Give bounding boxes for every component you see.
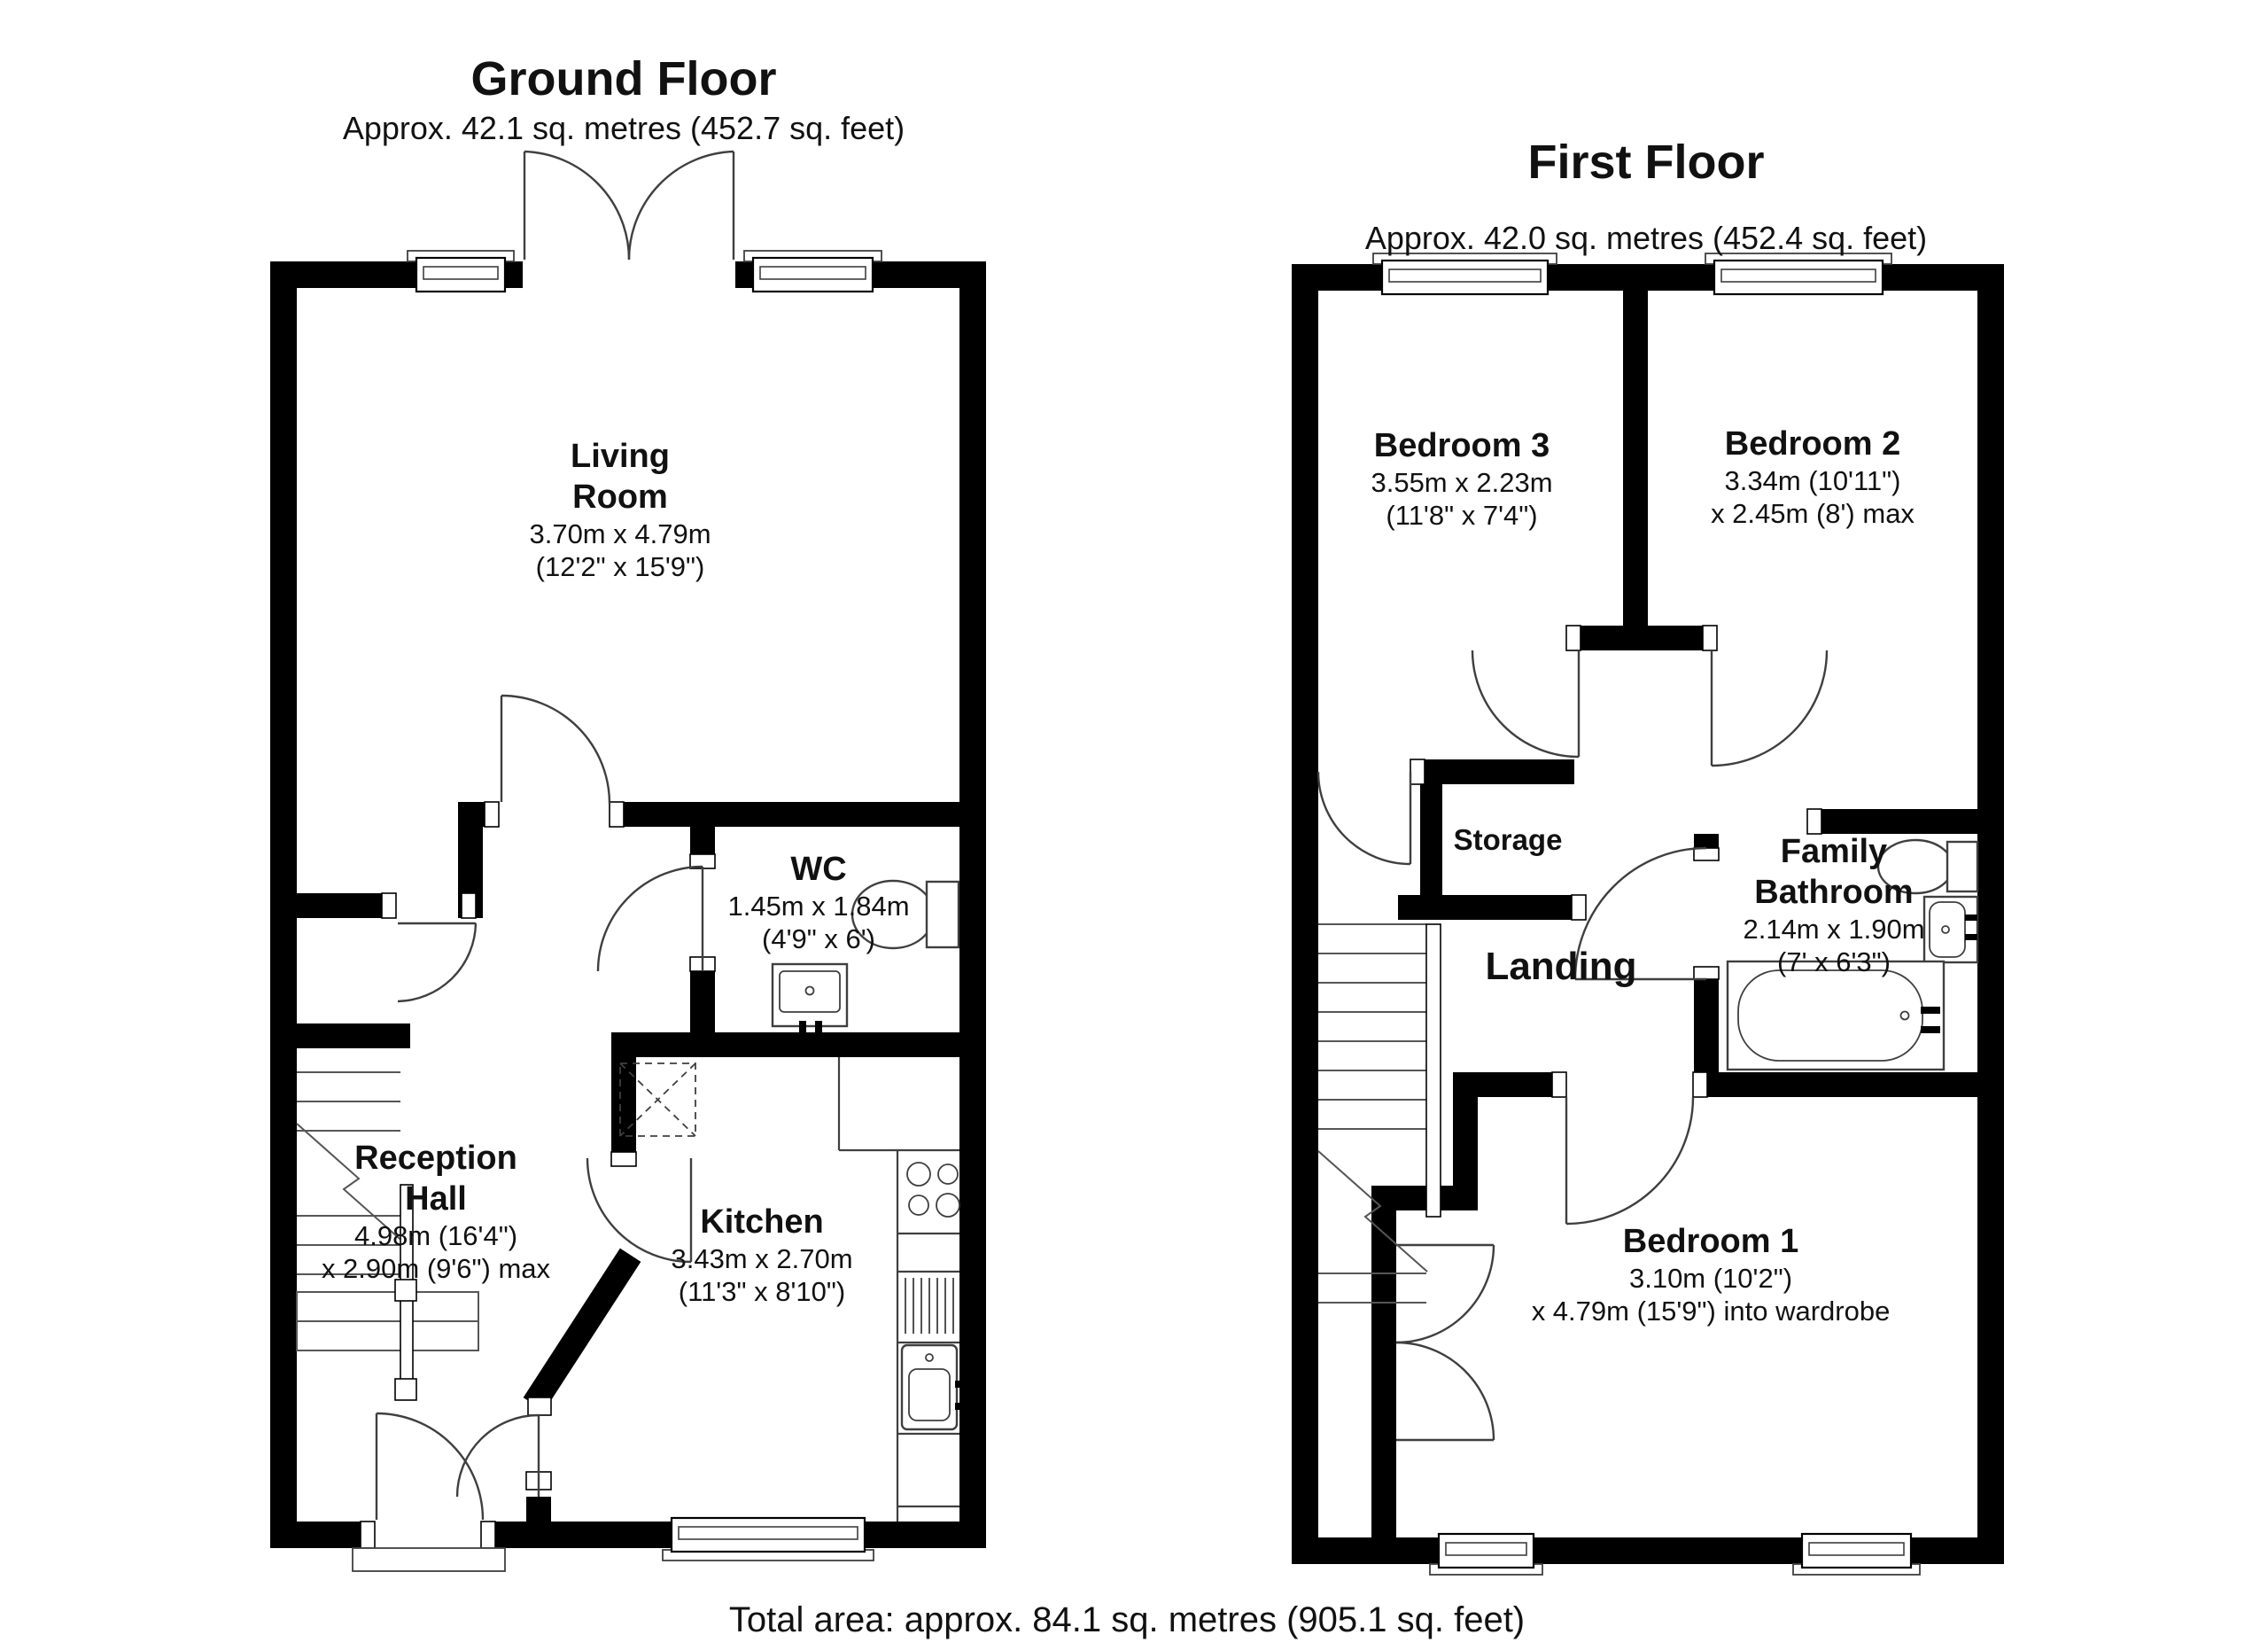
floorplan-page: Ground Floor Approx. 42.1 sq. metres (45…: [0, 0, 2268, 1650]
bedroom1-door: [1566, 1097, 1693, 1224]
room-label-bedroom1: Bedroom 1 3.10m (10'2") x 4.79m (15'9") …: [1532, 1221, 1891, 1327]
room-name: WC: [727, 849, 909, 890]
room-name: Family: [1743, 831, 1924, 872]
room-dims: x 2.45m (8') max: [1711, 497, 1915, 530]
ground-window-living-right: [744, 251, 882, 292]
room-label-wc: WC 1.45m x 1.84m (4'9" x 6'): [727, 849, 909, 955]
kitchen-sink: [902, 1345, 969, 1429]
room-dims: (4'9" x 6'): [727, 922, 909, 955]
room-dims: (11'8" x 7'4"): [1371, 499, 1552, 532]
room-label-bedroom3: Bedroom 3 3.55m x 2.23m (11'8" x 7'4"): [1371, 425, 1552, 532]
window-bedroom3: [1373, 253, 1557, 294]
room-name: Living: [529, 436, 711, 477]
room-name: Hall: [322, 1179, 550, 1219]
room-label-landing: Landing: [1485, 945, 1636, 989]
window-bedroom1-left: [1430, 1534, 1542, 1575]
room-dims: (11'3" x 8'10"): [671, 1275, 852, 1308]
room-dims: x 4.79m (15'9") into wardrobe: [1532, 1295, 1891, 1327]
room-dims: (7' x 6'3"): [1743, 946, 1924, 978]
room-name: Bedroom 1: [1532, 1221, 1891, 1262]
room-label-kitchen: Kitchen 3.43m x 2.70m (11'3" x 8'10"): [671, 1202, 852, 1308]
living-room-door: [501, 696, 610, 804]
bedroom3-cupboard-door: [1318, 772, 1410, 864]
room-label-storage: Storage: [1454, 822, 1563, 858]
room-name: Storage: [1454, 822, 1563, 858]
hall-living-door: [398, 923, 476, 1001]
kitchen-hob: [907, 1163, 959, 1217]
floorplan-drawing: [0, 0, 2268, 1650]
first-floor-title: First Floor: [1528, 135, 1765, 190]
room-dims: (12'2" x 15'9"): [529, 550, 711, 583]
kitchen-counter: [839, 1057, 959, 1522]
window-bedroom2: [1705, 253, 1891, 294]
ground-floor-title: Ground Floor: [471, 51, 777, 106]
room-name: Kitchen: [671, 1202, 852, 1242]
room-name: Bedroom 2: [1711, 424, 1915, 464]
room-label-family-bathroom: Family Bathroom 2.14m x 1.90m (7' x 6'3"…: [1743, 831, 1924, 978]
room-dims: 3.34m (10'11"): [1711, 464, 1915, 497]
room-name: Bathroom: [1743, 872, 1924, 913]
bedroom3-door: [1472, 650, 1579, 757]
room-dims: 2.14m x 1.90m: [1743, 913, 1924, 946]
room-dims: 3.43m x 2.70m: [671, 1242, 852, 1275]
window-bedroom1-right: [1793, 1534, 1920, 1575]
room-dims: 3.70m x 4.79m: [529, 518, 711, 550]
ground-window-kitchen: [663, 1518, 874, 1560]
room-name: Landing: [1485, 945, 1636, 989]
room-dims: 1.45m x 1.84m: [727, 890, 909, 922]
room-name: Reception: [322, 1138, 550, 1179]
ground-window-living-left: [408, 251, 514, 292]
room-dims: 4.98m (16'4"): [322, 1219, 550, 1252]
room-label-living-room: Living Room 3.70m x 4.79m (12'2" x 15'9"…: [529, 436, 711, 583]
room-dims: x 2.90m (9'6") max: [322, 1252, 550, 1285]
room-dims: 3.55m x 2.23m: [1371, 466, 1552, 499]
total-area-text: Total area: approx. 84.1 sq. metres (905…: [729, 1600, 1525, 1640]
wc-basin: [773, 964, 847, 1033]
bathroom-basin: [1924, 897, 1977, 962]
french-doors: [524, 152, 734, 260]
room-label-reception-hall: Reception Hall 4.98m (16'4") x 2.90m (9'…: [322, 1138, 550, 1285]
ground-floor-subtitle: Approx. 42.1 sq. metres (452.7 sq. feet): [343, 110, 905, 147]
room-name: Bedroom 3: [1371, 425, 1552, 466]
kitchen-drainer: [905, 1278, 953, 1334]
room-name: Room: [529, 477, 711, 518]
bedroom2-door: [1712, 650, 1827, 766]
wc-door: [598, 867, 703, 971]
first-floor-subtitle: Approx. 42.0 sq. metres (452.4 sq. feet): [1365, 220, 1927, 257]
room-dims: 3.10m (10'2"): [1532, 1262, 1891, 1295]
room-label-bedroom2: Bedroom 2 3.34m (10'11") x 2.45m (8') ma…: [1711, 424, 1915, 530]
